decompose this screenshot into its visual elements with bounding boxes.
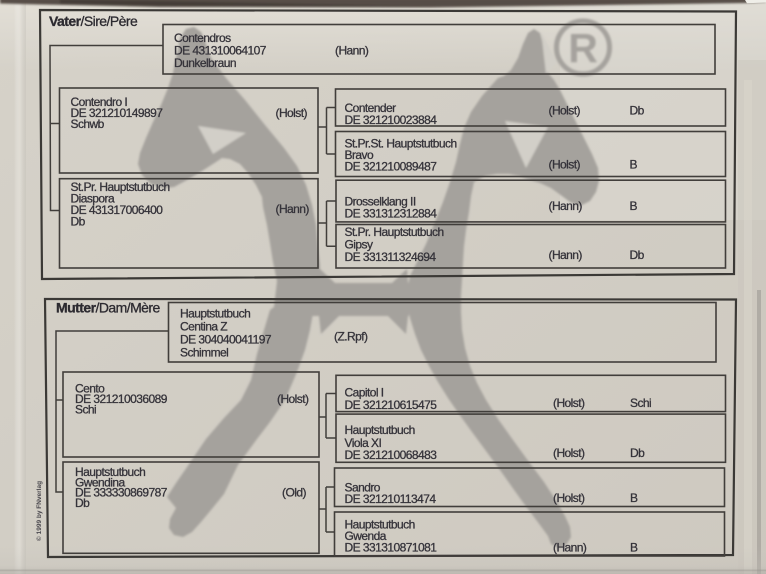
svg-text:DE 331311324694: DE 331311324694 xyxy=(345,250,437,264)
svg-text:Dunkelbraun: Dunkelbraun xyxy=(174,56,236,70)
svg-text:(Hann): (Hann) xyxy=(549,199,583,213)
svg-text:B: B xyxy=(630,491,638,505)
svg-text:B: B xyxy=(630,158,638,172)
svg-text:DE 321210089487: DE 321210089487 xyxy=(345,159,438,173)
svg-text:(Holst): (Holst) xyxy=(553,396,585,410)
svg-text:Schwb: Schwb xyxy=(71,117,105,131)
svg-text:B: B xyxy=(630,540,638,554)
svg-text:Vater/Sire/Père: Vater/Sire/Père xyxy=(49,13,138,29)
svg-text:Db: Db xyxy=(630,104,645,118)
svg-text:DE 321210113474: DE 321210113474 xyxy=(345,492,437,506)
svg-text:Db: Db xyxy=(630,248,645,262)
svg-text:(Holst): (Holst) xyxy=(549,104,581,118)
svg-text:(Hann): (Hann) xyxy=(276,202,310,216)
svg-text:DE 304040041197: DE 304040041197 xyxy=(180,333,272,347)
svg-text:(Holst): (Holst) xyxy=(276,106,308,120)
svg-text:Mutter/Dam/Mère: Mutter/Dam/Mère xyxy=(56,300,161,316)
svg-text:R: R xyxy=(568,25,598,71)
svg-text:(Hann): (Hann) xyxy=(553,540,587,554)
svg-text:(Holst): (Holst) xyxy=(553,446,585,460)
svg-text:(Old): (Old) xyxy=(282,486,306,500)
svg-text:(Holst): (Holst) xyxy=(553,491,585,505)
svg-text:DE 331310871081: DE 331310871081 xyxy=(345,540,438,554)
svg-text:Centina Z: Centina Z xyxy=(180,320,227,334)
svg-text:(Hann): (Hann) xyxy=(335,44,369,58)
svg-text:B: B xyxy=(630,199,638,213)
svg-text:Schi: Schi xyxy=(630,396,651,410)
svg-text:Db: Db xyxy=(75,496,90,510)
svg-text:(Z.Rpf): (Z.Rpf) xyxy=(334,330,368,344)
svg-text:DE 321210023884: DE 321210023884 xyxy=(345,113,438,127)
svg-text:DE 331312312884: DE 331312312884 xyxy=(345,207,438,221)
svg-text:Schimmel: Schimmel xyxy=(180,346,228,360)
svg-text:(Holst): (Holst) xyxy=(277,392,309,406)
svg-text:Schi: Schi xyxy=(75,403,96,417)
svg-text:© 1999 by FNverlag: © 1999 by FNverlag xyxy=(35,481,43,541)
svg-text:DE 321210615475: DE 321210615475 xyxy=(345,398,438,412)
svg-text:Db: Db xyxy=(630,446,645,460)
svg-text:(Holst): (Holst) xyxy=(549,158,581,172)
svg-text:Hauptstutbuch: Hauptstutbuch xyxy=(180,307,250,321)
svg-text:DE 321210068483: DE 321210068483 xyxy=(345,448,438,462)
svg-text:(Hann): (Hann) xyxy=(549,248,583,262)
svg-text:Db: Db xyxy=(71,215,86,229)
